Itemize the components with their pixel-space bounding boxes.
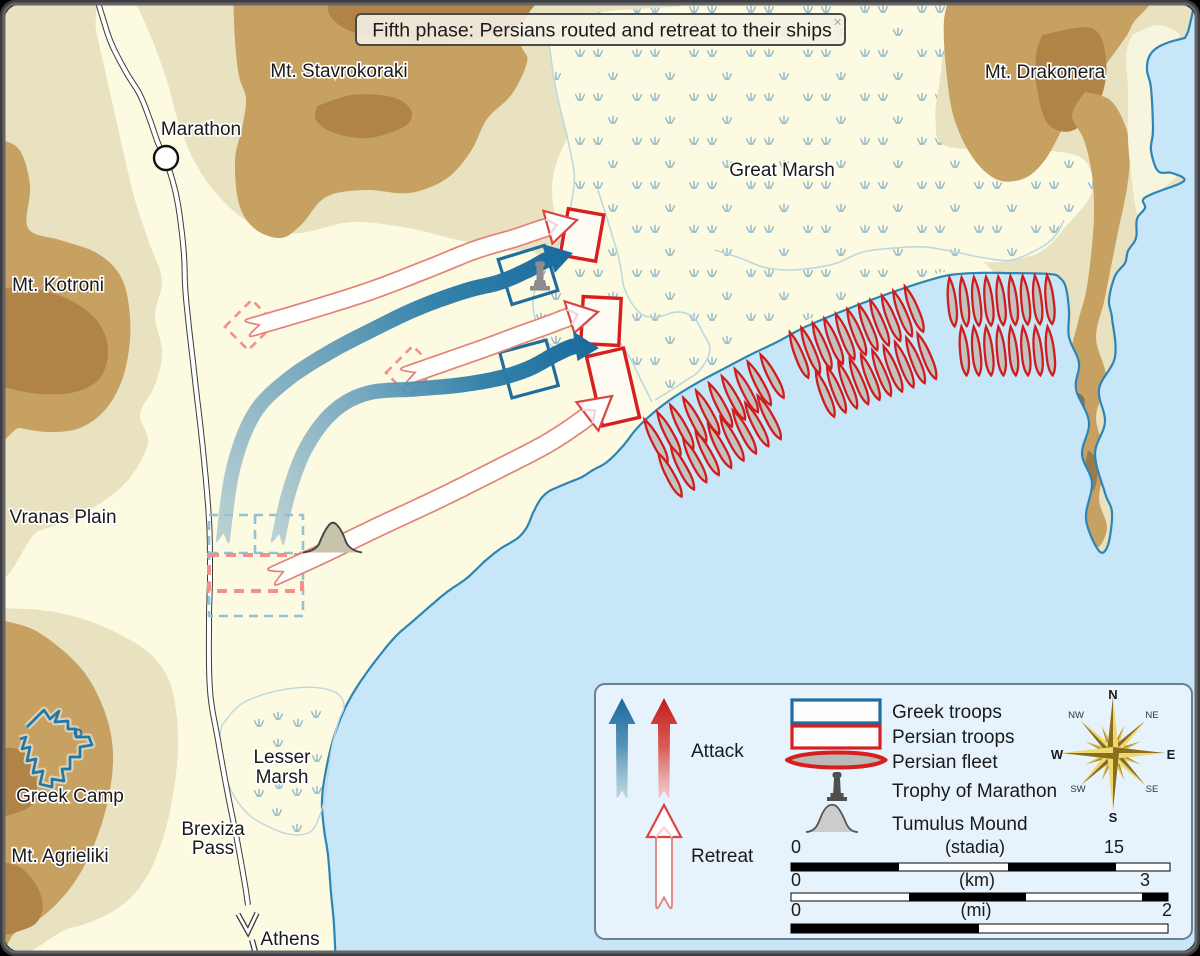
- svg-text:Mt. Agrieliki: Mt. Agrieliki: [11, 846, 108, 867]
- svg-text:Trophy of Marathon: Trophy of Marathon: [892, 781, 1057, 802]
- svg-text:2: 2: [1162, 900, 1172, 920]
- svg-text:0: 0: [791, 900, 801, 920]
- svg-text:(mi): (mi): [961, 900, 992, 920]
- svg-text:(km): (km): [959, 870, 995, 890]
- svg-text:Greek troops: Greek troops: [892, 702, 1002, 723]
- svg-text:E: E: [1167, 747, 1176, 762]
- svg-text:Athens: Athens: [260, 929, 319, 950]
- svg-text:Brexiza: Brexiza: [181, 819, 245, 840]
- svg-text:Great Marsh: Great Marsh: [729, 160, 835, 181]
- svg-text:Fifth phase: Persians routed a: Fifth phase: Persians routed and retreat…: [372, 20, 832, 42]
- svg-text:Pass: Pass: [192, 838, 234, 859]
- svg-text:Greek Camp: Greek Camp: [16, 786, 124, 807]
- svg-text:S: S: [1109, 810, 1118, 825]
- svg-text:Vranas Plain: Vranas Plain: [9, 507, 116, 528]
- svg-text:SE: SE: [1146, 784, 1159, 795]
- svg-text:NE: NE: [1145, 710, 1158, 721]
- svg-text:SW: SW: [1070, 784, 1085, 795]
- svg-text:Persian fleet: Persian fleet: [892, 752, 998, 773]
- svg-text:✕: ✕: [833, 17, 842, 29]
- svg-text:Retreat: Retreat: [691, 846, 754, 867]
- svg-text:0: 0: [791, 870, 801, 890]
- svg-text:3: 3: [1140, 870, 1150, 890]
- svg-text:W: W: [1051, 747, 1064, 762]
- svg-text:Tumulus Mound: Tumulus Mound: [892, 814, 1028, 835]
- svg-text:Mt. Kotroni: Mt. Kotroni: [12, 275, 104, 296]
- svg-text:Attack: Attack: [691, 741, 744, 762]
- svg-text:Marathon: Marathon: [161, 119, 241, 140]
- svg-text:NW: NW: [1068, 710, 1084, 721]
- svg-text:(stadia): (stadia): [945, 837, 1005, 857]
- svg-text:Mt. Drakonera: Mt. Drakonera: [985, 62, 1106, 83]
- svg-text:N: N: [1108, 687, 1117, 702]
- svg-text:Persian troops: Persian troops: [892, 727, 1015, 748]
- svg-text:0: 0: [791, 837, 801, 857]
- svg-text:Mt. Stavrokoraki: Mt. Stavrokoraki: [270, 61, 407, 82]
- svg-text:Lesser: Lesser: [253, 747, 311, 768]
- svg-text:15: 15: [1104, 837, 1124, 857]
- svg-text:Marsh: Marsh: [256, 767, 309, 788]
